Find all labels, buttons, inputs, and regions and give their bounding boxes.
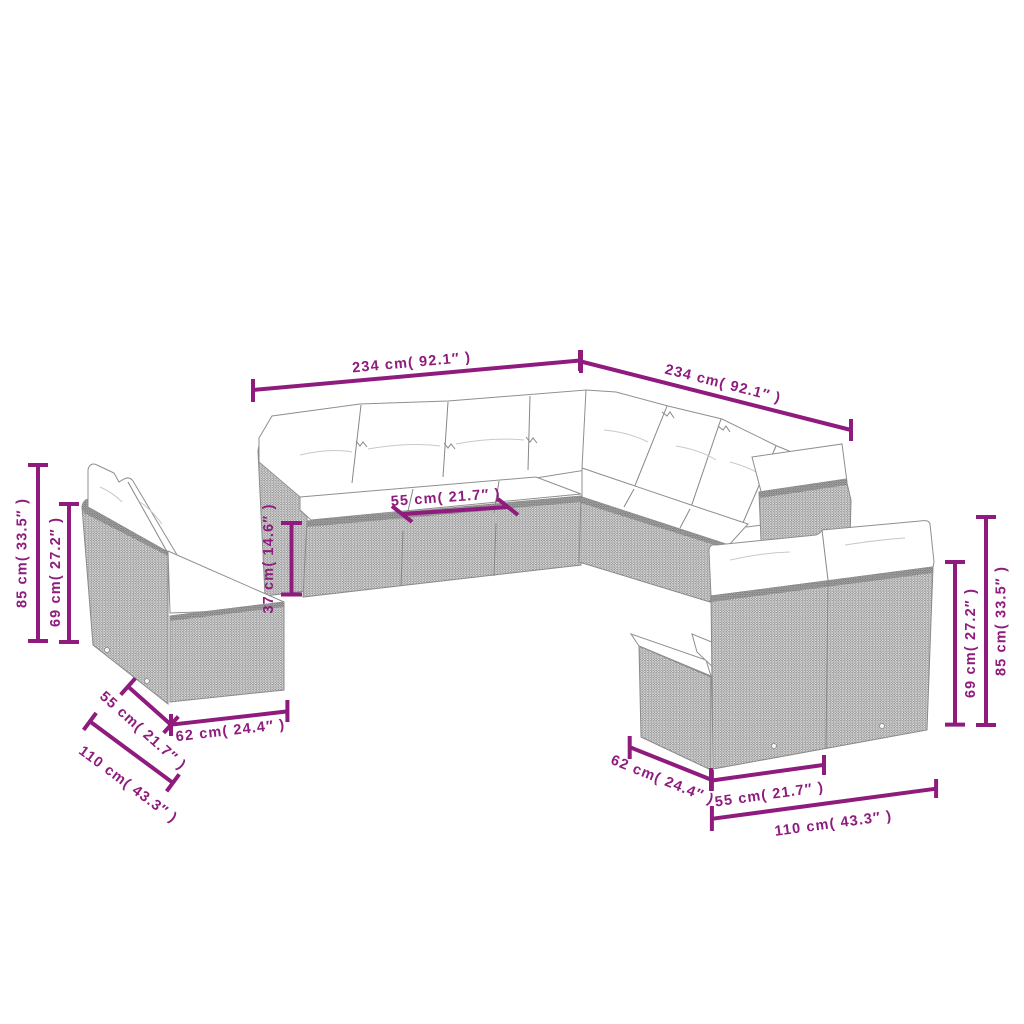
svg-text:69 cm( 27.2″ ): 69 cm( 27.2″ ) xyxy=(48,517,64,627)
svg-text:85 cm( 33.5″ ): 85 cm( 33.5″ ) xyxy=(994,566,1010,676)
svg-text:69 cm( 27.2″ ): 69 cm( 27.2″ ) xyxy=(963,588,979,698)
svg-text:85 cm( 33.5″ ): 85 cm( 33.5″ ) xyxy=(15,498,31,608)
svg-text:37 cm( 14.6″ ): 37 cm( 14.6″ ) xyxy=(261,503,277,613)
